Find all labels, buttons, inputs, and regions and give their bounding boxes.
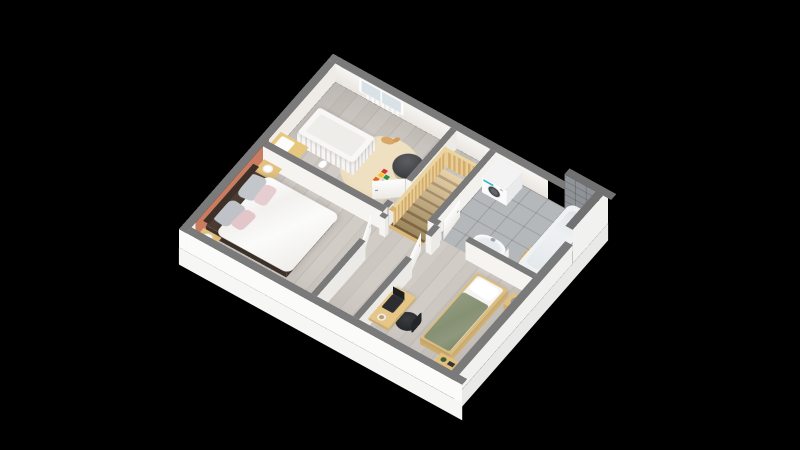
door-handle <box>457 210 458 213</box>
floor-plan-render-canvas <box>0 0 800 450</box>
door-handle <box>369 225 370 229</box>
shelf-plant <box>439 356 447 363</box>
floor-plan-3d-scene <box>179 72 616 403</box>
washing-machine-dial <box>500 188 503 192</box>
wall-face-master-right-hall-side-a <box>385 215 388 237</box>
door-handle <box>375 190 378 191</box>
door-handle <box>419 244 420 247</box>
window-mullion <box>380 91 382 103</box>
